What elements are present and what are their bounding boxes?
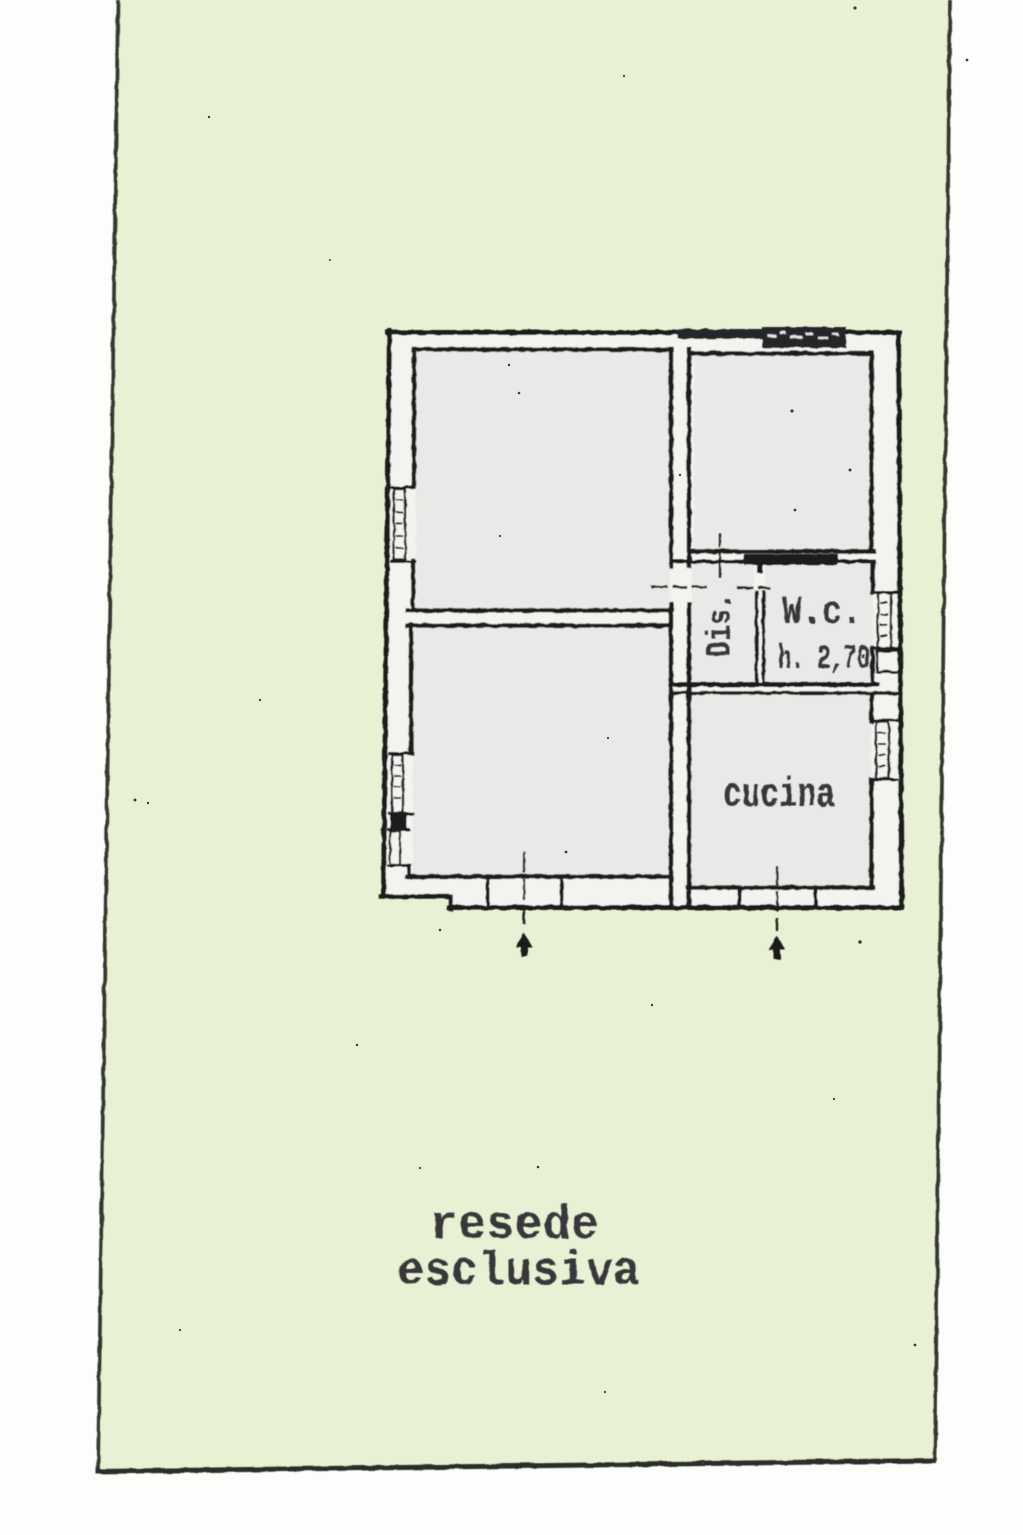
svg-text:h. 2,70: h. 2,70 <box>778 641 870 679</box>
svg-text:esclusiva: esclusiva <box>397 1246 640 1299</box>
svg-text:Dis.: Dis. <box>701 593 741 657</box>
svg-text:cucina: cucina <box>723 771 835 819</box>
svg-text:W.c.: W.c. <box>782 591 862 636</box>
